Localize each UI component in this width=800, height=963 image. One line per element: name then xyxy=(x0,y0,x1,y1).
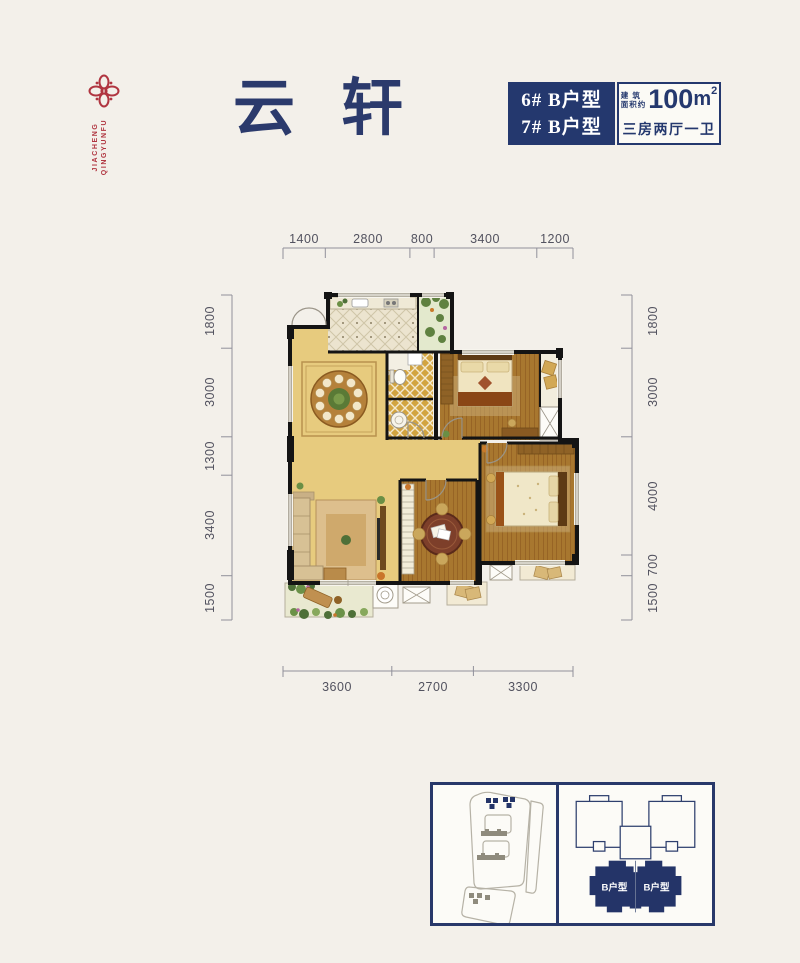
area-prefix-top: 建 筑 xyxy=(621,91,647,100)
layout-description: 三房两厅一卫 xyxy=(619,116,719,143)
location-panels: B户型 B户型 xyxy=(430,782,715,926)
dim-bracket-left xyxy=(218,293,234,622)
dim-label: 1200 xyxy=(540,232,570,246)
tv-cabinet xyxy=(380,506,386,570)
keyplan-unit-left-label: B户型 xyxy=(601,881,627,893)
pillow xyxy=(549,502,558,522)
brand-line1: JIACHENG xyxy=(92,101,101,193)
toilet-icon xyxy=(394,370,406,385)
plant-icon xyxy=(341,535,351,545)
core xyxy=(620,826,651,859)
tower-right xyxy=(649,801,695,847)
area-unit: m xyxy=(693,88,711,111)
siteplan-diagram xyxy=(433,785,556,923)
stool xyxy=(487,474,496,483)
floorplan-drawing xyxy=(280,288,592,636)
bedroom-2 xyxy=(440,352,540,440)
chair xyxy=(508,419,516,427)
kitchen xyxy=(328,295,418,352)
dim-label: 3400 xyxy=(470,232,500,246)
balcony-top xyxy=(418,294,452,352)
dim-label: 3300 xyxy=(508,680,538,694)
wardrobe xyxy=(441,354,453,404)
area-row: 建 筑 面积约 100 m 2 xyxy=(619,84,719,116)
wardrobe xyxy=(518,444,574,454)
sofa xyxy=(293,498,310,572)
washer-icon xyxy=(377,587,393,603)
chair xyxy=(459,528,471,540)
dim-bracket-bottom xyxy=(281,664,575,678)
plant-icon xyxy=(405,484,411,490)
dim-bracket-right xyxy=(618,293,634,622)
unit-number-box: 6# B户型 7# B户型 xyxy=(508,82,615,145)
area-info-box: 建 筑 面积约 100 m 2 三房两厅一卫 xyxy=(617,82,721,145)
plant-icon xyxy=(377,572,385,580)
balcony-bottom xyxy=(285,582,373,619)
chair xyxy=(413,528,425,540)
dim-label: 3600 xyxy=(322,680,352,694)
stool xyxy=(487,516,496,525)
dim-label: 1500 xyxy=(203,583,217,613)
plant-icon xyxy=(297,483,304,490)
dim-label: 3000 xyxy=(203,377,217,407)
plant-icon xyxy=(337,301,343,307)
tower-left xyxy=(576,801,622,847)
highlighted-buildings xyxy=(486,797,515,809)
dim-label: 700 xyxy=(646,554,660,576)
keyplan-diagram: B户型 B户型 xyxy=(559,785,712,923)
area-value: 100 xyxy=(648,86,693,113)
dim-label: 1800 xyxy=(203,306,217,336)
dim-label: 1300 xyxy=(203,441,217,471)
dim-label: 1400 xyxy=(289,232,319,246)
title-char-2: 轩 xyxy=(341,57,403,147)
entry-door xyxy=(292,308,309,325)
dim-label: 800 xyxy=(411,232,433,246)
dim-bracket-top xyxy=(281,246,575,260)
unit-line-1: 6# B户型 xyxy=(521,87,601,114)
page-title: 云 轩 xyxy=(233,62,403,142)
pillow xyxy=(487,362,509,372)
dim-label: 3000 xyxy=(646,377,660,407)
floorplan-poster: JIACHENG QINGYUNFU 云 轩 6# B户型 7# B户型 建 筑… xyxy=(0,0,800,963)
coffee-table xyxy=(324,568,346,581)
area-superscript: 2 xyxy=(711,85,717,97)
pillow xyxy=(549,476,558,496)
brand-line2: QINGYUNFU xyxy=(101,101,110,193)
brand-name: JIACHENG QINGYUNFU xyxy=(92,101,110,193)
dim-label: 3400 xyxy=(203,510,217,540)
unit-line-2: 7# B户型 xyxy=(521,114,601,141)
keyplan-unit-right-label: B户型 xyxy=(644,881,670,893)
title-char-1: 云 xyxy=(233,57,295,147)
chair xyxy=(436,503,448,515)
sink-icon xyxy=(352,299,368,307)
bathroom xyxy=(388,352,433,440)
dim-label: 1800 xyxy=(646,306,660,336)
area-prefix-bottom: 面积约 xyxy=(621,100,647,109)
tv xyxy=(377,518,380,560)
dim-label: 2700 xyxy=(418,680,448,694)
plant-icon xyxy=(377,496,385,504)
dim-label: 4000 xyxy=(646,481,660,511)
pillow xyxy=(461,362,483,372)
chair xyxy=(436,553,448,565)
dim-label: 1500 xyxy=(646,583,660,613)
area-prefix: 建 筑 面积约 xyxy=(621,91,647,109)
washbasin-icon xyxy=(391,412,407,428)
piano xyxy=(402,484,414,574)
dim-label: 2800 xyxy=(353,232,383,246)
other-buildings xyxy=(469,829,507,904)
